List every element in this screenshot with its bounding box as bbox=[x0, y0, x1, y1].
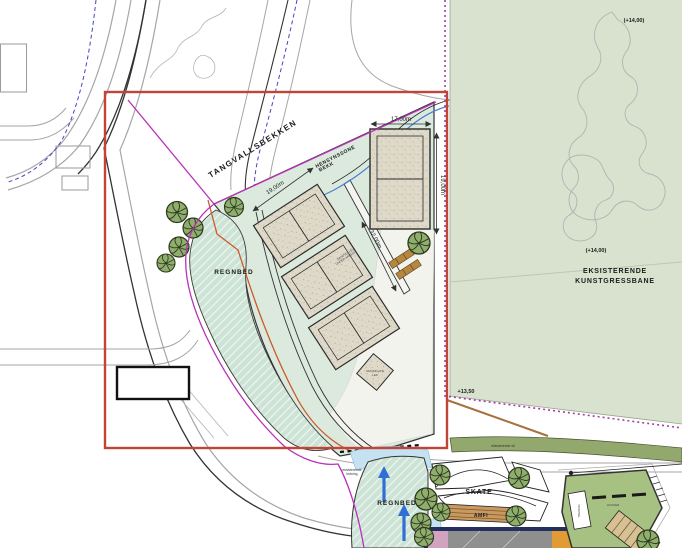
dim-court-height: 19,00m bbox=[439, 175, 445, 195]
site-plan: TANGVALLSBEKKEN HENSYNSSONE BEKK REGNBED… bbox=[0, 0, 682, 548]
gravel-note-line2: LEK bbox=[372, 373, 378, 377]
trening-label: TRENING bbox=[577, 504, 581, 518]
amfi-label: AMFI bbox=[474, 513, 488, 519]
pipe-note-line2: ledning bbox=[347, 472, 358, 476]
pitch-label-line1: EKSISTERENDE bbox=[583, 268, 647, 275]
court-top bbox=[370, 129, 430, 229]
path-note: eksisterende sti bbox=[491, 444, 515, 448]
existing-pitch bbox=[450, 0, 682, 424]
regnbed-south-label: REGNBED bbox=[377, 500, 417, 507]
site-plan-drawing: TANGVALLSBEKKEN HENSYNSSONE BEKK REGNBED… bbox=[0, 0, 682, 548]
skate-label: SKATE bbox=[465, 489, 492, 496]
bus-stop-box bbox=[117, 367, 189, 399]
dim-court-width: 17,00m bbox=[391, 117, 411, 123]
pitch-label-line2: KUNSTGRESSBANE bbox=[575, 278, 655, 285]
elevation-corner-label: +13,50 bbox=[458, 389, 475, 395]
elevation-mid-label: (+14,00) bbox=[586, 248, 607, 254]
elevation-top-label: (+14,00) bbox=[624, 18, 645, 24]
regnbed-west-label: REGNBED bbox=[214, 269, 254, 276]
husker-label: HUSKER bbox=[607, 503, 620, 507]
